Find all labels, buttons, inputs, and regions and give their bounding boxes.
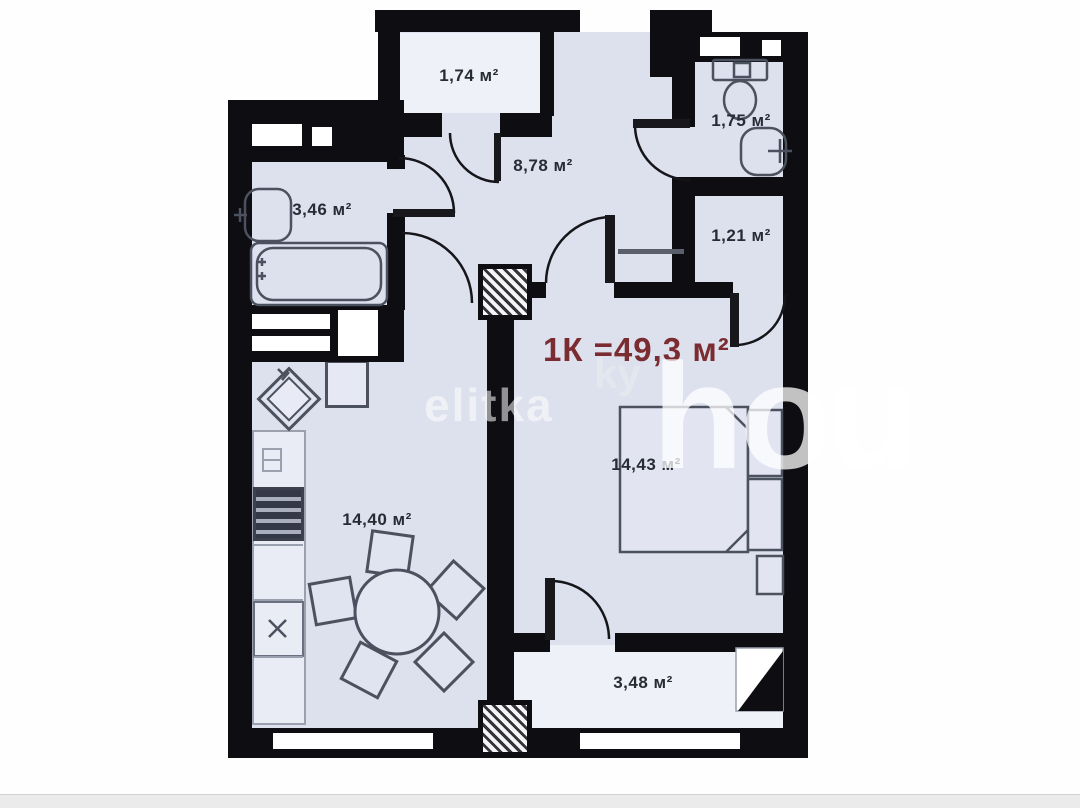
room-label-storage: 1,21 м² xyxy=(691,226,791,246)
door-arc xyxy=(450,133,499,182)
room-label-balcony-bottom: 3,48 м² xyxy=(593,673,693,693)
door-leaf xyxy=(545,578,555,640)
room-label-bedroom: 14,43 м² xyxy=(586,455,706,475)
room-label-balcony-top: 1,74 м² xyxy=(419,66,519,86)
counter-divider xyxy=(254,545,303,657)
door-leaf xyxy=(393,209,455,217)
door-arc xyxy=(402,233,472,303)
sink-cross-icon xyxy=(269,620,286,637)
bottom-bar xyxy=(0,794,1080,808)
faucet-icon xyxy=(278,369,289,380)
nightstand-icon xyxy=(748,410,782,476)
door-arc xyxy=(551,581,609,639)
door-leaf xyxy=(730,293,739,347)
room-label-wc: 1,75 м² xyxy=(691,111,791,131)
room-label-bathroom: 3,46 м² xyxy=(272,200,372,220)
bed-icon xyxy=(620,407,748,552)
room-label-kitchen-living: 14,40 м² xyxy=(317,510,437,530)
door-leaf xyxy=(605,215,615,283)
door-leaf xyxy=(633,119,690,128)
plan-linework xyxy=(0,0,1080,808)
bathtub-inner xyxy=(257,248,381,300)
room-label-hallway: 8,78 м² xyxy=(493,156,593,176)
nightstand-icon xyxy=(757,556,783,594)
column-hatch xyxy=(478,264,532,320)
faucet-icon xyxy=(768,139,792,163)
nightstand-icon xyxy=(748,479,782,550)
plan-title: 1К =49,3 м² xyxy=(543,331,730,369)
toilet-button-icon xyxy=(734,63,750,77)
door-arc xyxy=(546,217,611,283)
door-arc xyxy=(735,295,785,345)
floor-plan: 1,74 м² 8,78 м² 1,75 м² 1,21 м² 3,46 м² … xyxy=(0,0,1080,808)
bathtub-icon xyxy=(251,243,387,305)
door-arc xyxy=(399,158,454,213)
door-arc xyxy=(635,125,690,180)
dining-table-icon xyxy=(355,570,439,654)
taps-icon xyxy=(258,258,266,280)
column-hatch xyxy=(478,700,532,757)
